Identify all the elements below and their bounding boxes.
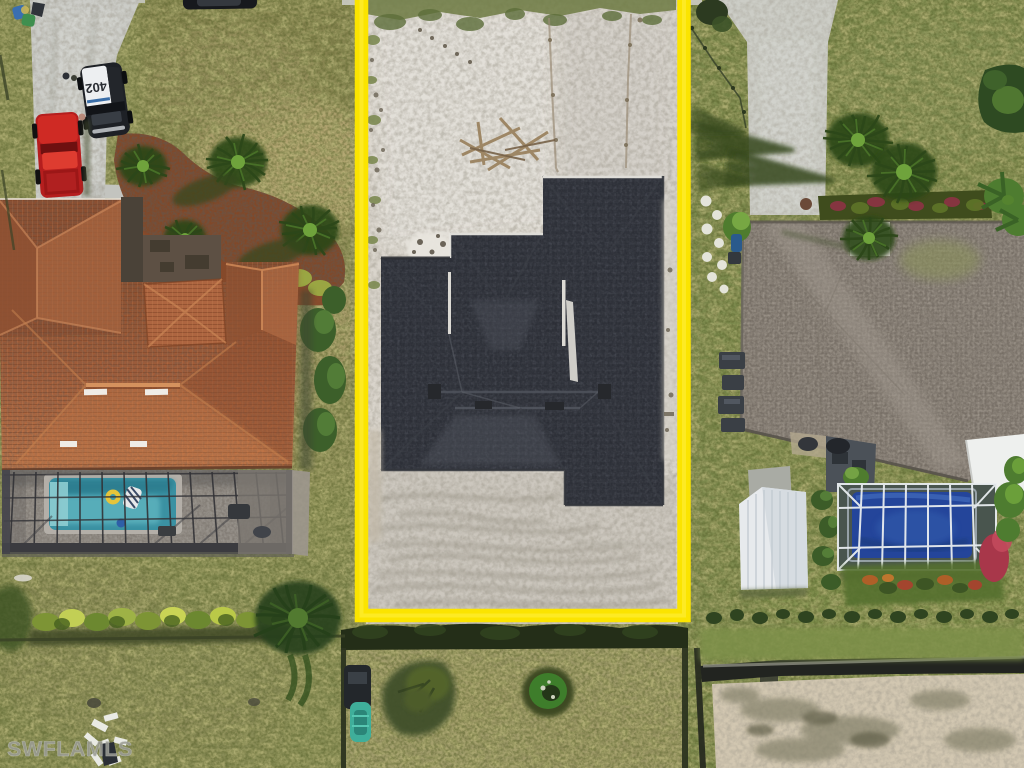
svg-text:SWFLAMLS: SWFLAMLS (7, 737, 133, 761)
svg-text:402: 402 (84, 79, 108, 97)
